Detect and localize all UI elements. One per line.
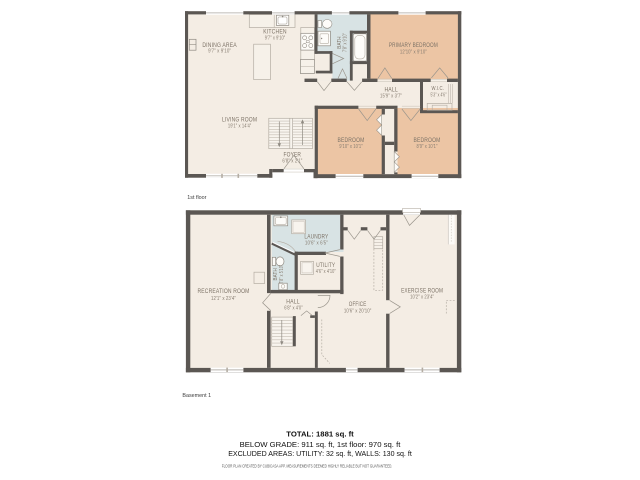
svg-text:4'6" x 4'10": 4'6" x 4'10" (316, 269, 336, 275)
svg-text:8'9" x 10'1": 8'9" x 10'1" (417, 144, 438, 150)
svg-text:12'10" x 9'10": 12'10" x 9'10" (400, 50, 427, 56)
svg-text:RECREATION ROOM: RECREATION ROOM (198, 289, 250, 295)
svg-text:OFFICE: OFFICE (349, 302, 367, 308)
svg-text:15'9" x 3'7": 15'9" x 3'7" (380, 93, 402, 99)
svg-text:FLOOR PLAN CREATED BY CUBICASA: FLOOR PLAN CREATED BY CUBICASA APP. MEAS… (222, 464, 393, 469)
svg-text:19'1" x 14'4": 19'1" x 14'4" (228, 124, 252, 130)
svg-text:1st floor: 1st floor (187, 195, 206, 201)
svg-text:EXCLUDED AREAS: UTILITY: 32 sq: EXCLUDED AREAS: UTILITY: 32 sq. ft, WALL… (228, 449, 412, 458)
svg-text:BELOW GRADE: 911 sq. ft, 1st f: BELOW GRADE: 911 sq. ft, 1st floor: 970 … (240, 440, 402, 449)
svg-text:10'6" x 20'10": 10'6" x 20'10" (344, 309, 372, 315)
svg-text:6'8" x 2'1": 6'8" x 2'1" (282, 158, 302, 164)
svg-text:PRIMARY BEDROOM: PRIMARY BEDROOM (389, 43, 438, 49)
svg-text:9'7" x 9'10": 9'7" x 9'10" (208, 49, 231, 55)
svg-text:9'10" x 10'1": 9'10" x 10'1" (339, 144, 363, 150)
svg-text:7'8" x 9'10": 7'8" x 9'10" (343, 33, 349, 52)
svg-text:TOTAL: 1881 sq. ft: TOTAL: 1881 sq. ft (286, 429, 354, 438)
svg-text:12'1" x 23'4": 12'1" x 23'4" (211, 296, 236, 302)
svg-text:Basement 1: Basement 1 (182, 393, 211, 399)
svg-text:W.I.C.: W.I.C. (432, 86, 445, 92)
svg-text:9'7" x 9'10": 9'7" x 9'10" (265, 36, 286, 42)
svg-text:10'2" x 23'4": 10'2" x 23'4" (410, 295, 434, 301)
svg-text:10'6" x 6'5": 10'6" x 6'5" (305, 240, 328, 246)
svg-text:BATH: BATH (273, 268, 279, 281)
svg-text:6'8" x 4'0": 6'8" x 4'0" (284, 306, 303, 312)
svg-text:LIVING ROOM: LIVING ROOM (222, 118, 257, 124)
svg-text:5'3" x 4'6": 5'3" x 4'6" (431, 92, 447, 98)
svg-text:7'8" x 5'10": 7'8" x 5'10" (279, 265, 285, 284)
svg-text:HALL: HALL (286, 299, 300, 305)
svg-text:EXERCISE ROOM: EXERCISE ROOM (401, 288, 443, 294)
